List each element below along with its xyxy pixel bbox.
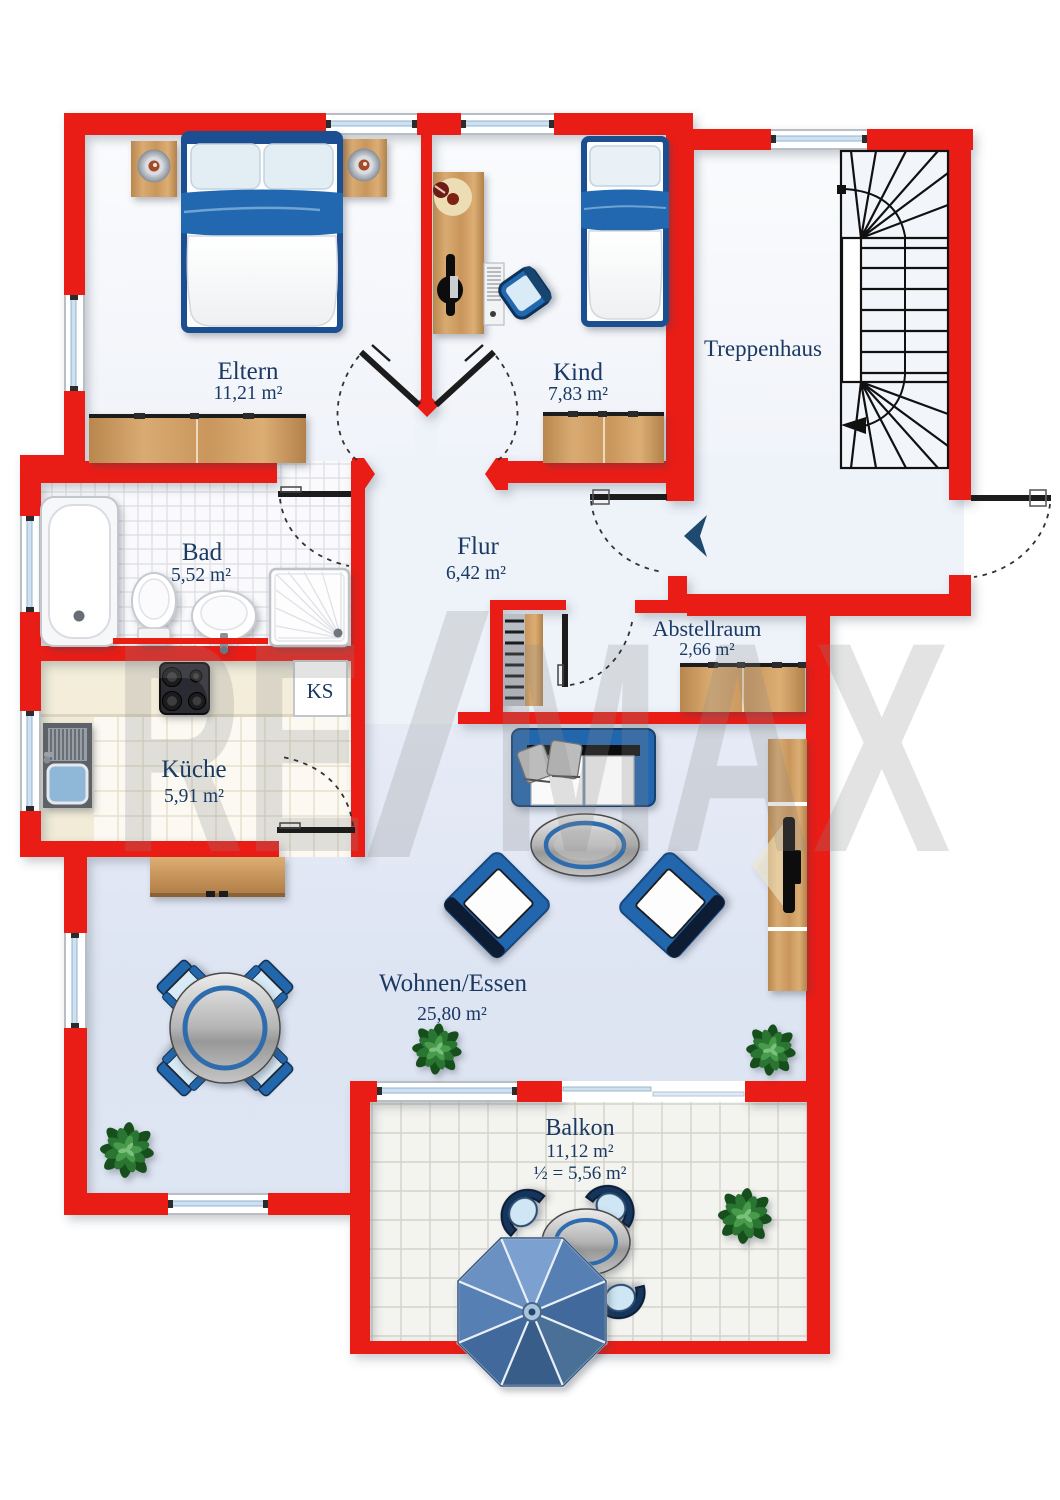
svg-text:RE: RE bbox=[113, 579, 365, 915]
svg-text:Flur: Flur bbox=[457, 533, 499, 560]
svg-text:Bad: Bad bbox=[182, 539, 223, 566]
svg-text:6,42 m²: 6,42 m² bbox=[446, 563, 506, 584]
svg-text:Abstellraum: Abstellraum bbox=[653, 616, 762, 641]
svg-text:7,83 m²: 7,83 m² bbox=[548, 384, 608, 405]
svg-text:Balkon: Balkon bbox=[545, 1115, 614, 1141]
svg-text:11,12 m²: 11,12 m² bbox=[546, 1141, 614, 1162]
svg-text:11,21 m²: 11,21 m² bbox=[213, 383, 282, 404]
svg-text:Treppenhaus: Treppenhaus bbox=[704, 336, 822, 361]
svg-text:5,52 m²: 5,52 m² bbox=[171, 565, 231, 586]
svg-text:2,66 m²: 2,66 m² bbox=[679, 639, 734, 659]
svg-text:Küche: Küche bbox=[161, 756, 226, 783]
svg-text:Wohnen/Essen: Wohnen/Essen bbox=[379, 970, 527, 997]
svg-text:Eltern: Eltern bbox=[217, 358, 279, 385]
svg-text:½ = 5,56 m²: ½ = 5,56 m² bbox=[534, 1163, 627, 1184]
svg-text:25,80 m²: 25,80 m² bbox=[417, 1004, 487, 1025]
svg-text:5,91 m²: 5,91 m² bbox=[164, 786, 224, 807]
svg-text:Kind: Kind bbox=[553, 359, 604, 386]
